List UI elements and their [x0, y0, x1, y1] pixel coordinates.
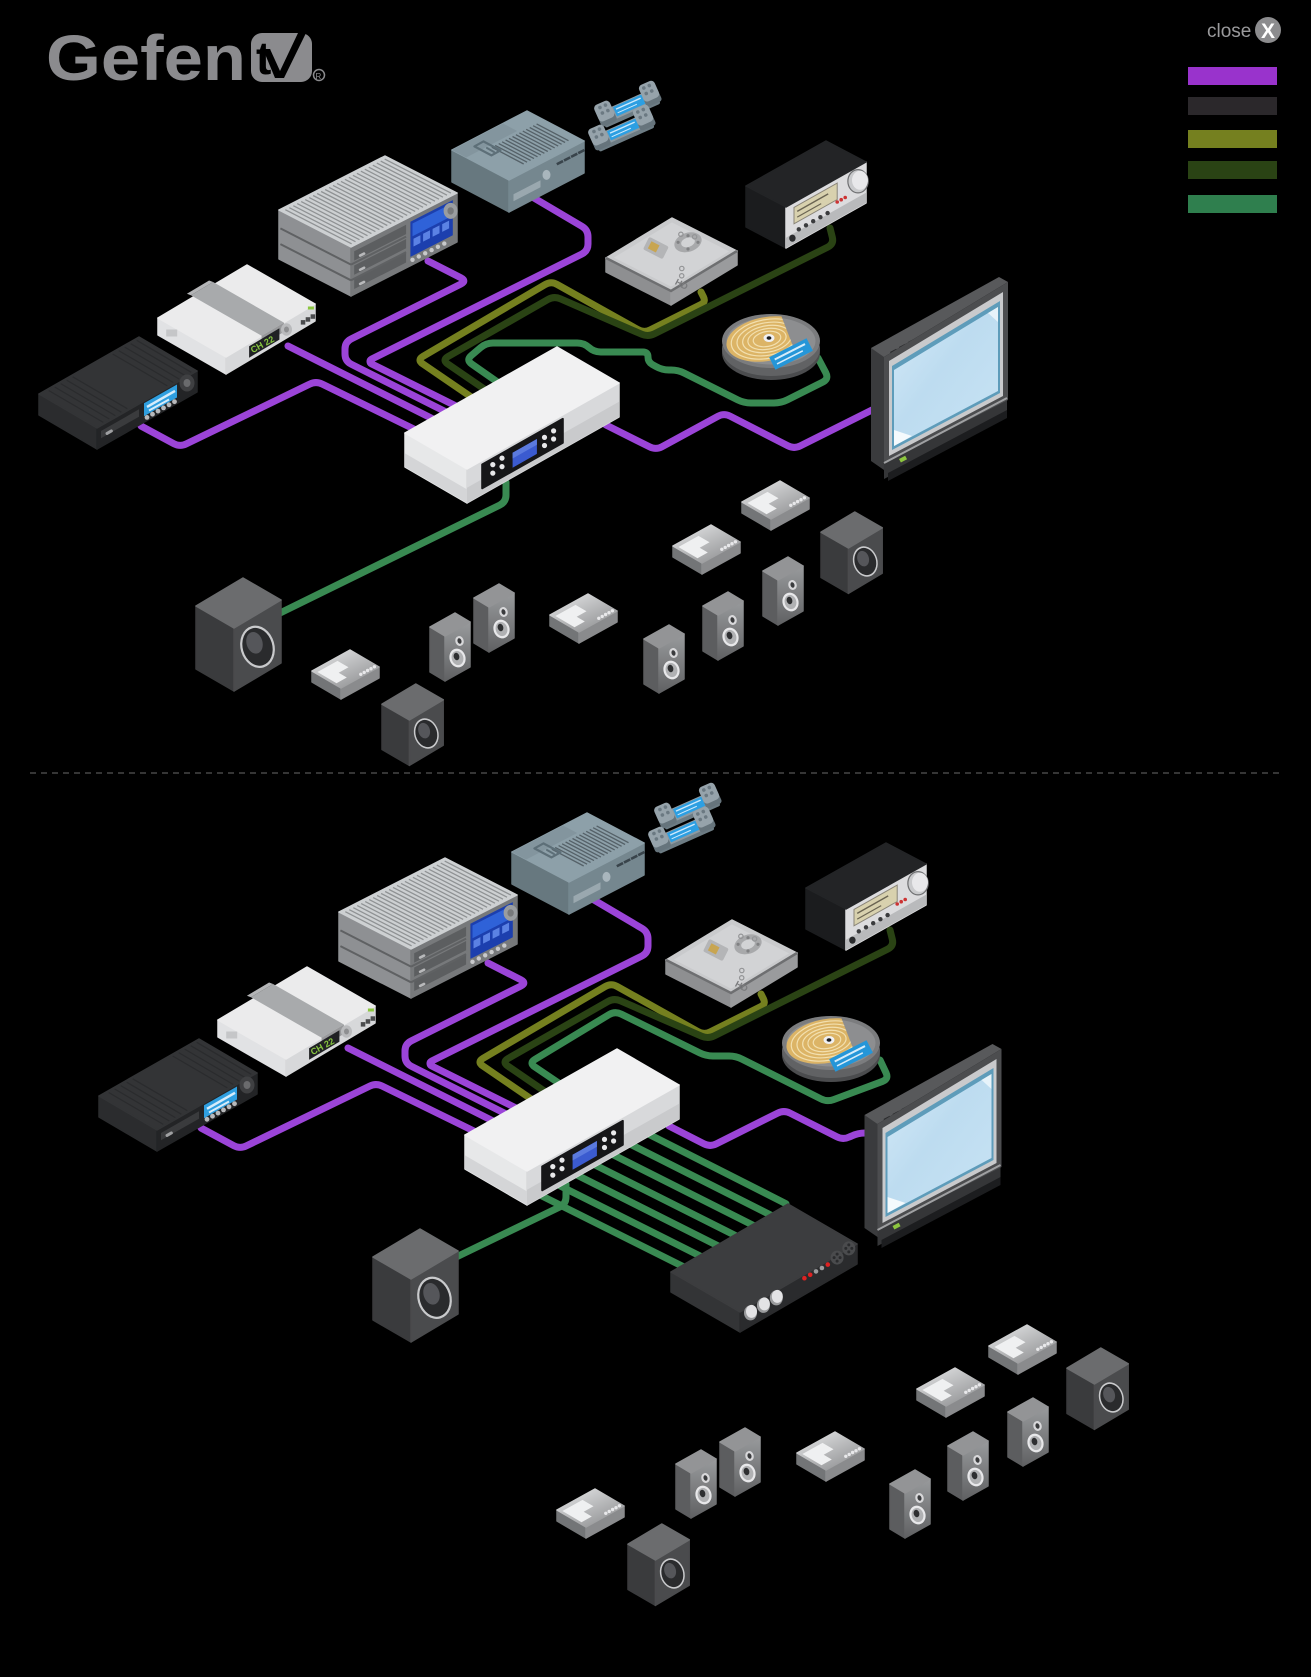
- svg-text:Gefen: Gefen: [46, 22, 246, 94]
- svg-text:X: X: [1261, 20, 1275, 43]
- svg-text:close: close: [1207, 21, 1251, 42]
- svg-text:R: R: [316, 72, 322, 81]
